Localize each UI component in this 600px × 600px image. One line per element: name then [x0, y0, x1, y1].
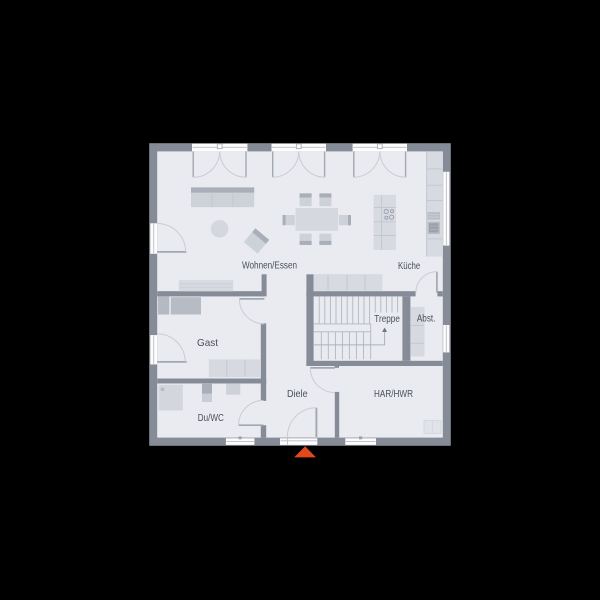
svg-text:Abst.: Abst. — [417, 314, 436, 325]
svg-text:Treppe: Treppe — [374, 314, 400, 325]
svg-text:HAR/HWR: HAR/HWR — [374, 389, 413, 400]
svg-text:Du/WC: Du/WC — [198, 413, 224, 424]
svg-text:Küche: Küche — [398, 261, 421, 272]
svg-text:Gast: Gast — [197, 338, 218, 349]
svg-text:Diele: Diele — [287, 389, 308, 400]
svg-text:Wohnen/Essen: Wohnen/Essen — [242, 261, 297, 272]
